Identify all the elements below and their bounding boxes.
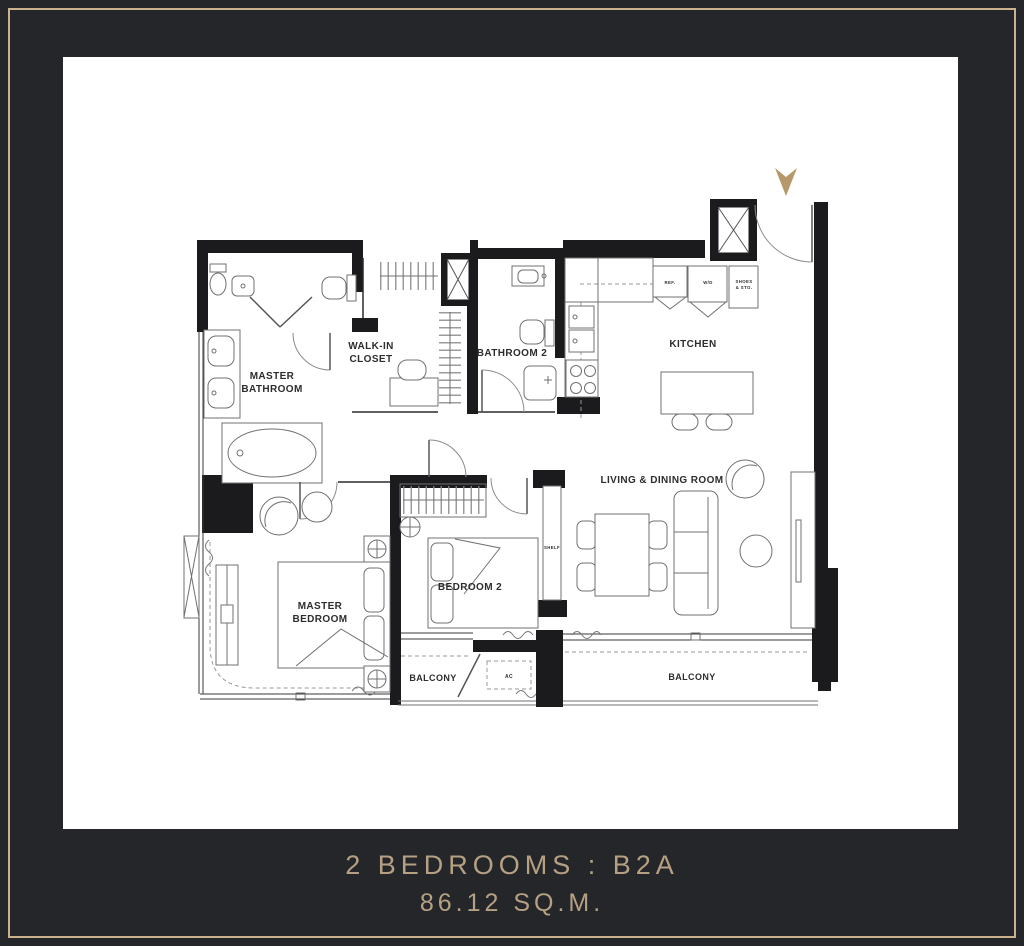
unit-type-title: 2 BEDROOMS : B2A: [0, 850, 1024, 881]
label-master-bathroom-line1: MASTER: [250, 371, 295, 382]
plan-caption: 2 BEDROOMS : B2A 86.12 SQ.M.: [0, 850, 1024, 918]
label-shoes-line1: SHOES: [735, 279, 752, 284]
unit-area-subtitle: 86.12 SQ.M.: [0, 889, 1024, 918]
label-ac: AC: [505, 674, 513, 680]
label-bedroom2: BEDROOM 2: [438, 582, 502, 593]
bathroom2-fixtures: [482, 266, 556, 412]
label-living-dining: LIVING & DINING ROOM: [601, 475, 724, 486]
floor-plan-page: MASTER BATHROOM WALK-IN CLOSET BATHROOM …: [0, 0, 1024, 946]
floor-plan-drawing: MASTER BATHROOM WALK-IN CLOSET BATHROOM …: [0, 0, 1024, 946]
entry-door: [755, 205, 812, 262]
label-walk-in-closet-line2: CLOSET: [350, 354, 393, 365]
label-balcony-left: BALCONY: [409, 673, 456, 683]
bedroom2-furniture: [400, 478, 538, 628]
label-master-bedroom-line2: BEDROOM: [292, 614, 347, 625]
label-bathroom2: BATHROOM 2: [477, 348, 548, 359]
duct-shaft-1: [447, 259, 469, 300]
duct-shaft-entry: [718, 207, 749, 253]
label-balcony-right: BALCONY: [668, 672, 715, 682]
label-shoes-line2: & STO.: [736, 285, 753, 290]
walk-in-closet-fixtures: [380, 276, 466, 477]
label-walk-in-closet-line1: WALK-IN: [348, 341, 394, 352]
label-shelf: SHELF: [544, 545, 560, 550]
label-wd: W/D: [703, 280, 713, 285]
entry-direction-arrow: [775, 168, 797, 196]
label-master-bathroom-line2: BATHROOM: [241, 384, 302, 395]
label-ref: REF.: [665, 280, 676, 285]
label-master-bedroom-line1: MASTER: [298, 601, 343, 612]
label-kitchen: KITCHEN: [669, 339, 716, 350]
